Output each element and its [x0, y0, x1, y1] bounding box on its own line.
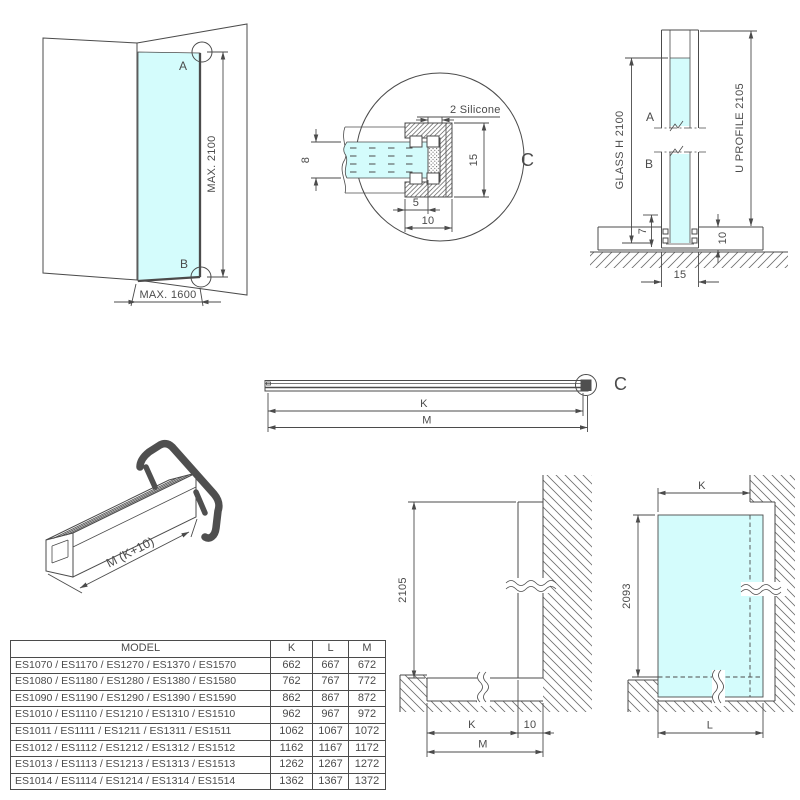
k-cell: 1362 [271, 773, 313, 790]
figure-corner-view: A B MAX. 2100 MAX. 1600 [43, 24, 247, 306]
dim-l-label: L [707, 720, 713, 732]
dim-k-10: K 10 [427, 680, 554, 757]
m-cell: 1272 [349, 757, 386, 774]
col-header-l: L [313, 641, 349, 658]
l-cell: 767 [313, 674, 349, 691]
wall-floor-hatch [400, 475, 592, 712]
dim-profile-height-label: U PROFILE 2105 [734, 83, 746, 173]
k-cell: 662 [271, 657, 313, 674]
table-header-row: MODEL K L M [11, 641, 386, 658]
model-cell: ES1070 / ES1170 / ES1270 / ES1370 / ES15… [11, 657, 271, 674]
dim-15-label: 15 [468, 154, 480, 167]
dim-m: M [427, 739, 543, 753]
figure-profile-3d: M (K+10) [46, 444, 219, 593]
k-cell: 862 [271, 690, 313, 707]
k-cell: 1262 [271, 757, 313, 774]
model-dimension-table: MODEL K L M ES1070 / ES1170 / ES1270 / E… [10, 640, 386, 790]
dim-inset-depth: 7 [637, 215, 658, 247]
model-cell: ES1010 / ES1110 / ES1210 / ES1310 / ES15… [11, 707, 271, 724]
label-b: B [180, 257, 188, 271]
dim-10-label: 10 [717, 232, 729, 245]
table-row: ES1014 / ES1114 / ES1214 / ES1314 / ES15… [11, 773, 386, 790]
k-cell: 1062 [271, 723, 313, 740]
figure-vertical-section: A B GLASS H 2100 U PROFILE 2105 7 10 [590, 30, 788, 287]
m-cell: 972 [349, 707, 386, 724]
model-cell: ES1080 / ES1180 / ES1280 / ES1380 / ES15… [11, 674, 271, 691]
glass-lower [671, 154, 690, 243]
dim-10-label: 10 [422, 215, 435, 227]
dim-glass-height-label: GLASS H 2100 [614, 111, 626, 190]
dim-glass-height: GLASS H 2100 [614, 58, 668, 243]
dim-2105-label: 2105 [397, 577, 409, 603]
dim-15-label: 15 [674, 269, 687, 281]
glass-upper [671, 58, 690, 126]
dim-m-label: M [478, 739, 487, 751]
table-row: ES1011 / ES1111 / ES1211 / ES1311 / ES15… [11, 723, 386, 740]
dim-8-label: 8 [300, 157, 312, 163]
k-cell: 962 [271, 707, 313, 724]
l-cell: 867 [313, 690, 349, 707]
l-cell: 1367 [313, 773, 349, 790]
label-a: A [179, 59, 187, 73]
silicone-label: 2 Silicone [450, 104, 501, 116]
table-row: ES1013 / ES1113 / ES1213 / ES1313 / ES15… [11, 757, 386, 774]
dim-max-width-label: MAX. 1600 [139, 289, 196, 301]
figure-wall-elevation: 2105 K 10 M [397, 475, 592, 757]
table-row: ES1090 / ES1190 / ES1290 / ES1390 / ES15… [11, 690, 386, 707]
glass-panel [138, 52, 200, 281]
m-cell: 1072 [349, 723, 386, 740]
label-a: A [646, 110, 654, 124]
dim-5-label: 5 [413, 197, 419, 209]
dim-2093-label: 2093 [621, 583, 633, 609]
model-cell: ES1013 / ES1113 / ES1213 / ES1313 / ES15… [11, 757, 271, 774]
table-row: ES1080 / ES1180 / ES1280 / ES1380 / ES15… [11, 674, 386, 691]
dim-glass-thickness: 8 [300, 129, 341, 191]
l-cell: 967 [313, 707, 349, 724]
dim-max-height-label: MAX. 2100 [206, 135, 218, 192]
glass-panel [658, 515, 763, 697]
col-header-model: MODEL [11, 641, 271, 658]
dim-2105: 2105 [397, 502, 516, 678]
m-cell: 772 [349, 674, 386, 691]
m-cell: 1172 [349, 740, 386, 757]
callout-c-label: C [614, 374, 627, 394]
l-cell: 667 [313, 657, 349, 674]
l-cell: 1067 [313, 723, 349, 740]
dim-7-label: 7 [637, 228, 649, 234]
k-cell: 1162 [271, 740, 313, 757]
technical-drawing-page: A B MAX. 2100 MAX. 1600 [0, 0, 800, 800]
dim-k-label: K [468, 719, 476, 731]
figure-glass-elevation: K 2093 L [621, 475, 795, 738]
dim-10-label: 10 [524, 719, 537, 731]
table-row: ES1010 / ES1110 / ES1210 / ES1310 / ES15… [11, 707, 386, 724]
dim-profile-height: 15 [454, 123, 489, 197]
table-row: ES1070 / ES1170 / ES1270 / ES1370 / ES15… [11, 657, 386, 674]
label-b: B [645, 157, 653, 171]
l-cell: 1267 [313, 757, 349, 774]
col-header-m: M [349, 641, 386, 658]
dim-m-label: M [422, 415, 431, 427]
model-cell: ES1011 / ES1111 / ES1211 / ES1311 / ES15… [11, 723, 271, 740]
figure-detail-c: 8 15 5 10 2 Sili [300, 73, 534, 241]
m-cell: 1372 [349, 773, 386, 790]
silicone-callout: 2 Silicone [416, 104, 501, 123]
dim-k: K [658, 480, 750, 512]
col-header-k: K [271, 641, 313, 658]
dim-k-label: K [698, 480, 706, 492]
figure-profile-bar: C K M [265, 374, 627, 432]
m-cell: 872 [349, 690, 386, 707]
table-row: ES1012 / ES1112 / ES1212 / ES1312 / ES15… [11, 740, 386, 757]
dim-2093: 2093 [621, 515, 655, 677]
model-cell: ES1090 / ES1190 / ES1290 / ES1390 / ES15… [11, 690, 271, 707]
m-cell: 672 [349, 657, 386, 674]
dim-k-label: K [420, 398, 428, 410]
callout-c-label: C [521, 150, 534, 170]
model-cell: ES1014 / ES1114 / ES1214 / ES1314 / ES15… [11, 773, 271, 790]
dim-profile-height: U PROFILE 2105 [700, 31, 757, 226]
left-wall [43, 38, 137, 280]
model-cell: ES1012 / ES1112 / ES1212 / ES1312 / ES15… [11, 740, 271, 757]
l-cell: 1167 [313, 740, 349, 757]
k-cell: 762 [271, 674, 313, 691]
profile-bar-body [265, 381, 588, 392]
end-cap [581, 380, 592, 392]
ground-hatch [590, 252, 788, 268]
